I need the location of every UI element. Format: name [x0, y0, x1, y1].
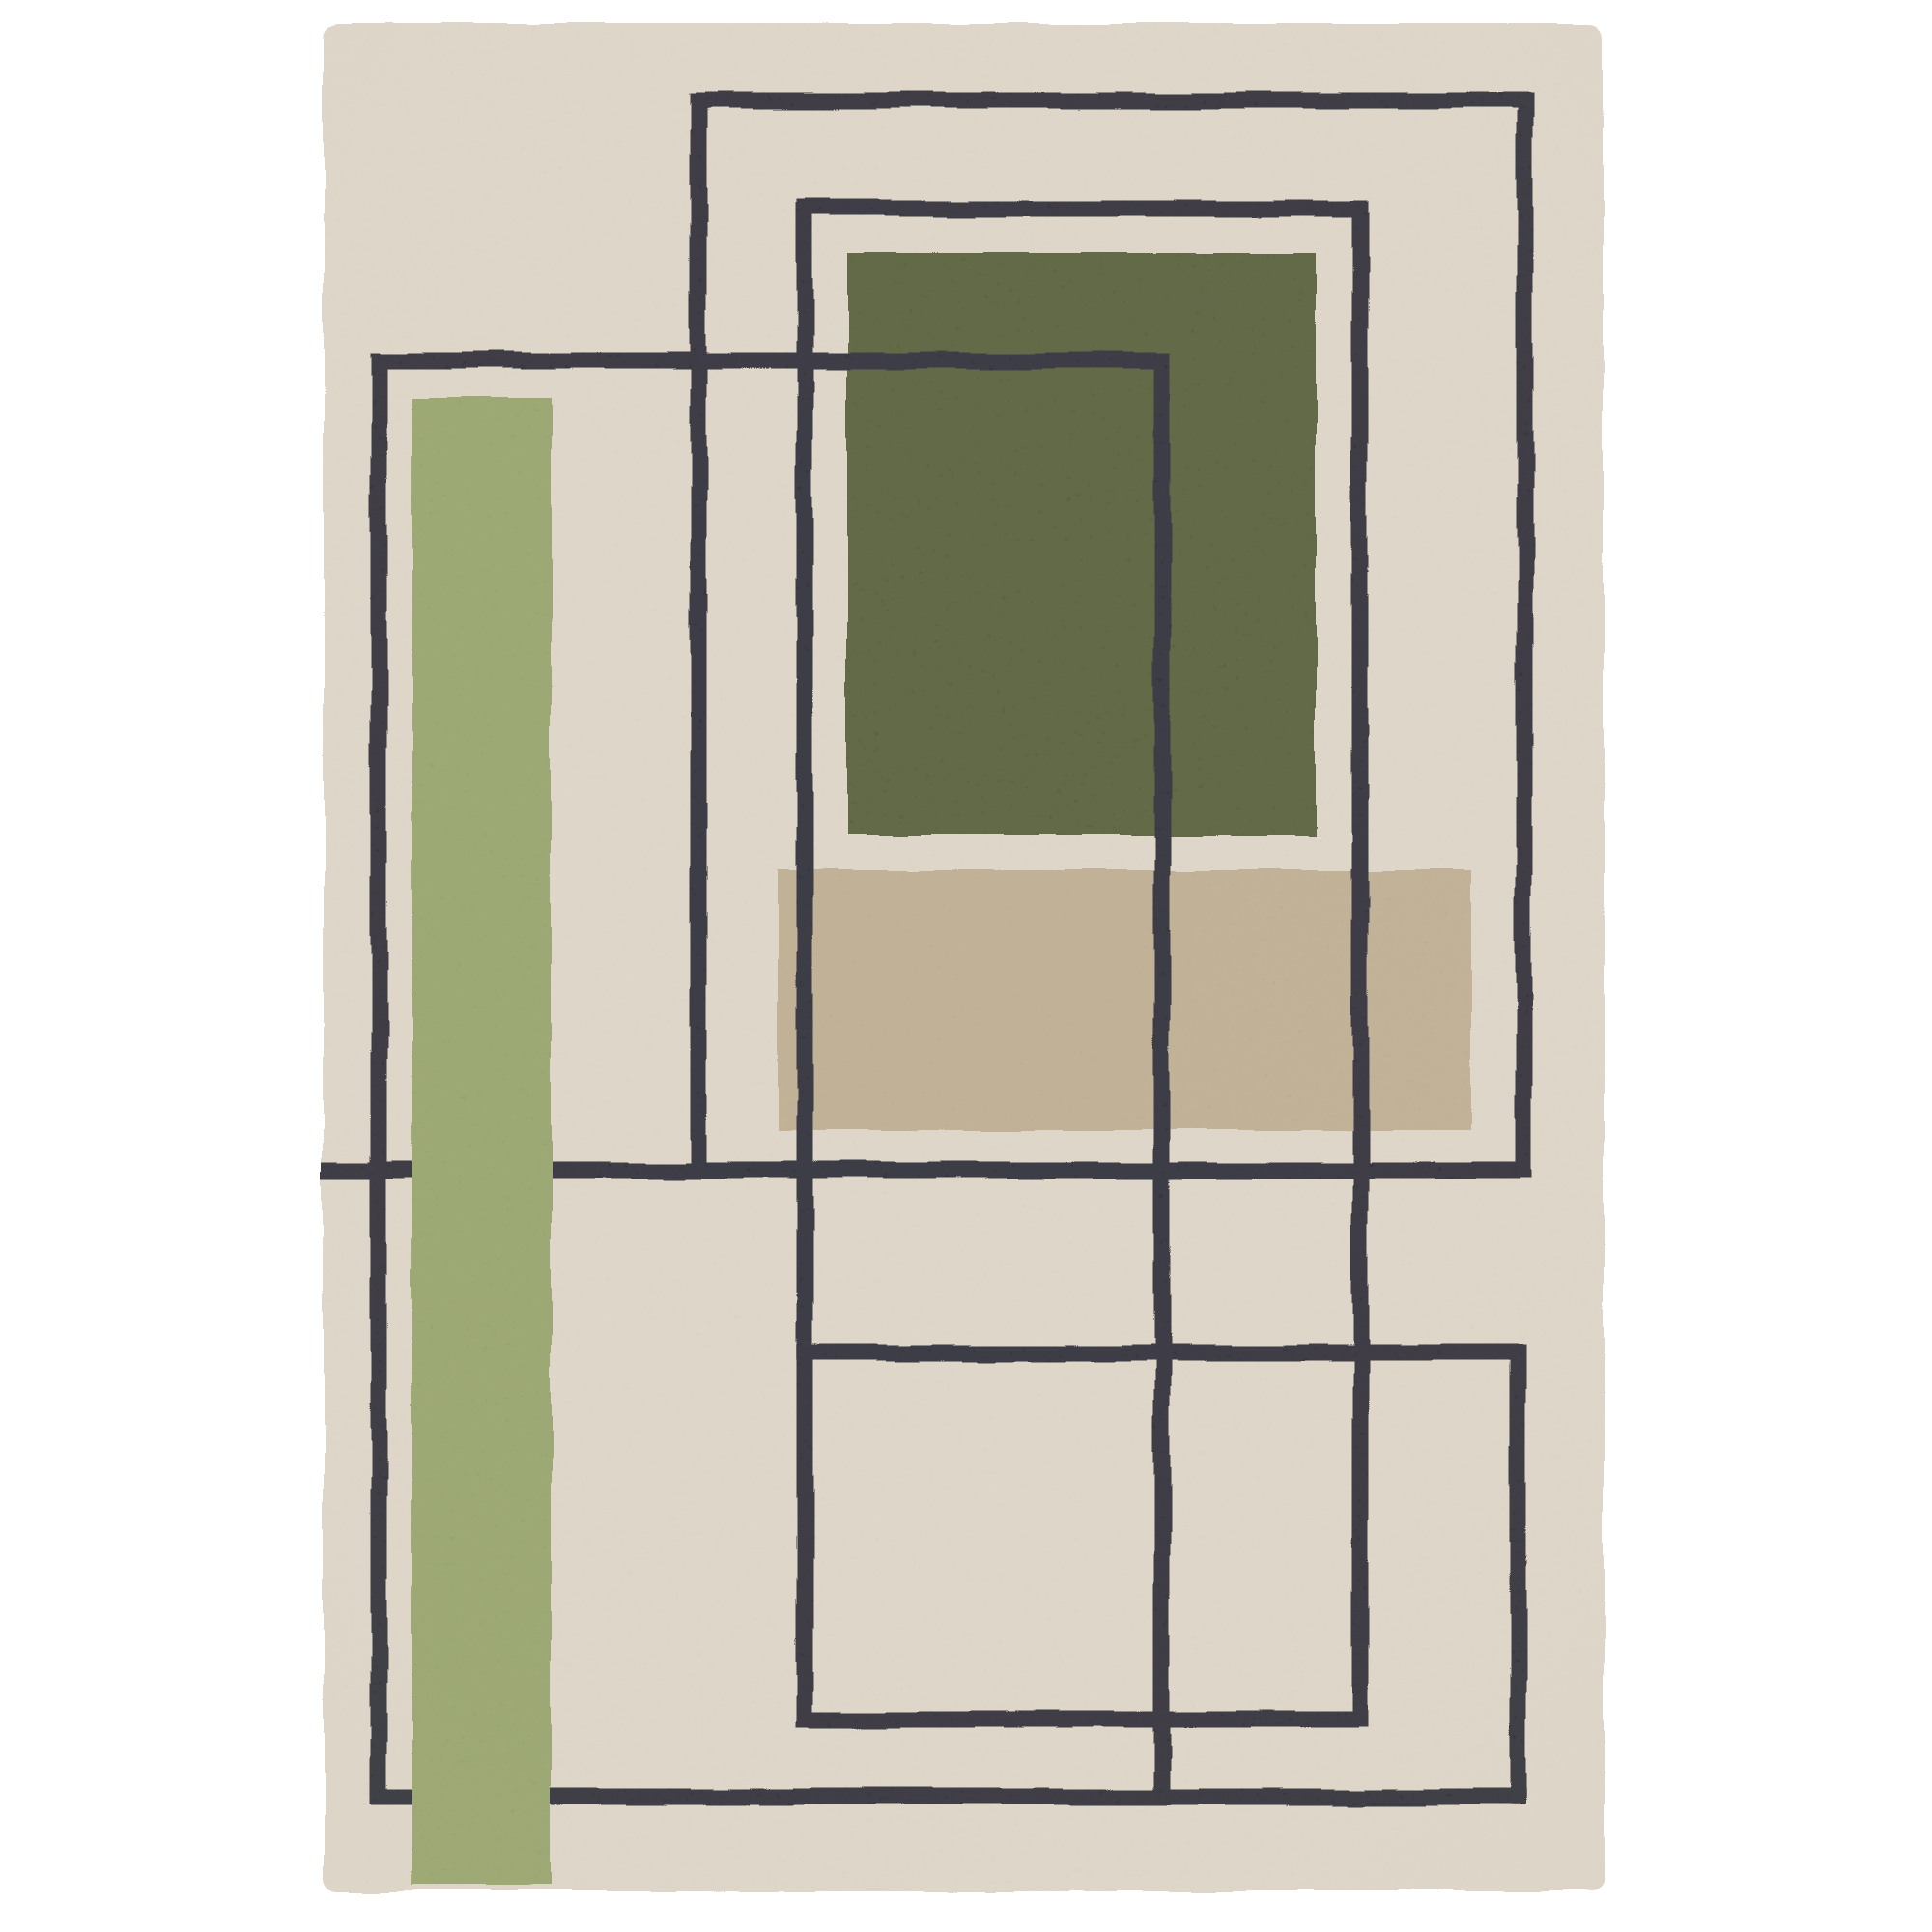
- wool-texture-highlight: [324, 24, 1604, 1891]
- product-photo-stage: [0, 0, 1932, 1932]
- rug: [324, 24, 1604, 1891]
- rug-photo-svg: [0, 0, 1932, 1932]
- rug-weave: [324, 24, 1604, 1891]
